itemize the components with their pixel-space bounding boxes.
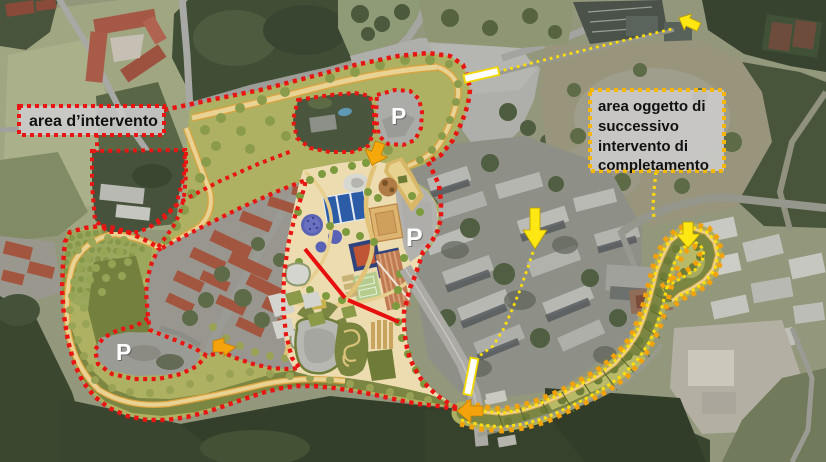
svg-text:P: P	[391, 103, 406, 129]
svg-text:P: P	[406, 224, 423, 252]
svg-text:area d’intervento: area d’intervento	[29, 113, 158, 130]
svg-text:P: P	[116, 339, 131, 365]
svg-text:successivo: successivo	[598, 118, 679, 135]
svg-text:area oggetto di: area oggetto di	[598, 98, 706, 115]
svg-text:intervento di: intervento di	[598, 138, 688, 155]
svg-text:completamento: completamento	[598, 157, 709, 174]
